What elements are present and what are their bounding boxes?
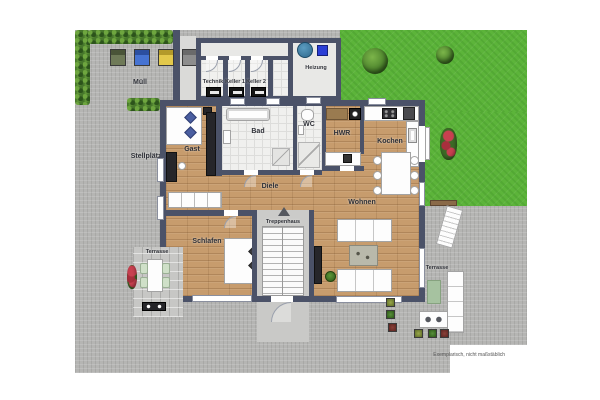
shower (298, 142, 320, 168)
garden-chair (162, 277, 170, 288)
door-gap (340, 166, 354, 171)
room-label-hwr: HWR (329, 130, 355, 137)
toilet (301, 109, 314, 121)
wall (166, 210, 224, 216)
floor-plan-canvas: Müll Stellplätze Technik Keller 1 Keller… (0, 0, 600, 400)
grill (142, 302, 166, 311)
stairs-rail (282, 226, 283, 296)
potted-plant-icon (440, 329, 449, 338)
tv-board (314, 246, 322, 284)
heating-tank-icon (297, 42, 313, 58)
room-label-treppenhaus: Treppenhaus (251, 220, 315, 226)
potted-plant-icon (388, 323, 397, 332)
shelf-hwr (326, 108, 348, 120)
room-label-keller2: Keller 2 (243, 80, 269, 86)
heating-unit-icon (317, 45, 328, 56)
dining-chair (373, 171, 382, 180)
kitchen-sink (408, 128, 417, 143)
potted-plant-icon (386, 310, 395, 319)
shower (272, 148, 290, 166)
bathtub (226, 108, 270, 121)
room-label-gast: Gast (178, 146, 206, 153)
bush-icon (436, 46, 454, 64)
window (266, 98, 280, 105)
garden-fence (430, 200, 457, 206)
room-label-schlafen: Schlafen (184, 238, 230, 245)
lawn-right-strip (425, 112, 527, 206)
wardrobe (206, 112, 216, 176)
storage-shelf (229, 87, 244, 97)
built-in-closet (168, 192, 222, 208)
sofa (337, 219, 392, 242)
sofa (337, 269, 392, 292)
dining-chair (410, 156, 419, 165)
room-label-wohnen: Wohnen (340, 199, 384, 206)
room-label-bad: Bad (248, 128, 268, 135)
window (306, 97, 321, 104)
disclaimer-text: Exemplarisch, nicht maßstäblich (360, 353, 505, 358)
stairs-up-arrow-icon (278, 207, 290, 216)
hedge-top (88, 30, 173, 44)
flower-pot-icon (127, 265, 137, 289)
wall (216, 106, 222, 176)
appliance (343, 154, 352, 163)
coffee-table (349, 245, 378, 266)
window (157, 158, 164, 182)
washing-machine (349, 108, 361, 120)
window (368, 98, 386, 105)
stairs (262, 226, 304, 296)
garden-chair (162, 263, 170, 274)
flower-bush-icon (440, 128, 457, 160)
courtyard-wall (173, 30, 180, 102)
room-label-diele: Diele (256, 183, 284, 190)
dining-chair (373, 156, 382, 165)
walkway-cellar (180, 36, 196, 100)
garden-chair (140, 263, 148, 274)
outdoor-sofa (447, 271, 464, 333)
bed-gast (166, 107, 202, 145)
window (419, 182, 425, 206)
potted-plant-icon (414, 329, 423, 338)
room-label-wc: WC (301, 121, 317, 128)
dining-chair (410, 171, 419, 180)
storage-shelf (206, 87, 221, 97)
waste-bin-icon (110, 49, 126, 66)
desk-chair (178, 162, 186, 170)
potted-plant-icon (386, 298, 395, 307)
fridge (403, 107, 415, 120)
area-label-terrasse-left: Terrasse (134, 250, 180, 256)
dining-chair (410, 186, 419, 195)
storage-shelf (251, 87, 266, 97)
window (157, 196, 164, 220)
desk (166, 152, 177, 182)
area-label-muell: Müll (118, 79, 162, 86)
garden-table (147, 259, 163, 292)
room-label-kochen: Kochen (372, 138, 408, 145)
waste-bin-icon (134, 49, 150, 66)
waste-bin-icon (158, 49, 174, 66)
dining-table (381, 152, 411, 195)
bush-icon (362, 48, 388, 74)
room-label-heizung: Heizung (297, 66, 335, 72)
garden-chair (140, 277, 148, 288)
hedge-small (127, 98, 160, 111)
window (192, 295, 252, 302)
outdoor-bench (419, 311, 448, 328)
door-leaf (425, 127, 430, 160)
potted-plant-icon (428, 329, 437, 338)
sink (223, 130, 231, 144)
outdoor-mat (427, 280, 441, 304)
dining-chair (373, 186, 382, 195)
heizung-wall (288, 38, 293, 101)
stove (382, 108, 397, 119)
cellar-partition-wall (268, 56, 273, 101)
plant-icon (325, 271, 336, 282)
window (230, 98, 245, 105)
